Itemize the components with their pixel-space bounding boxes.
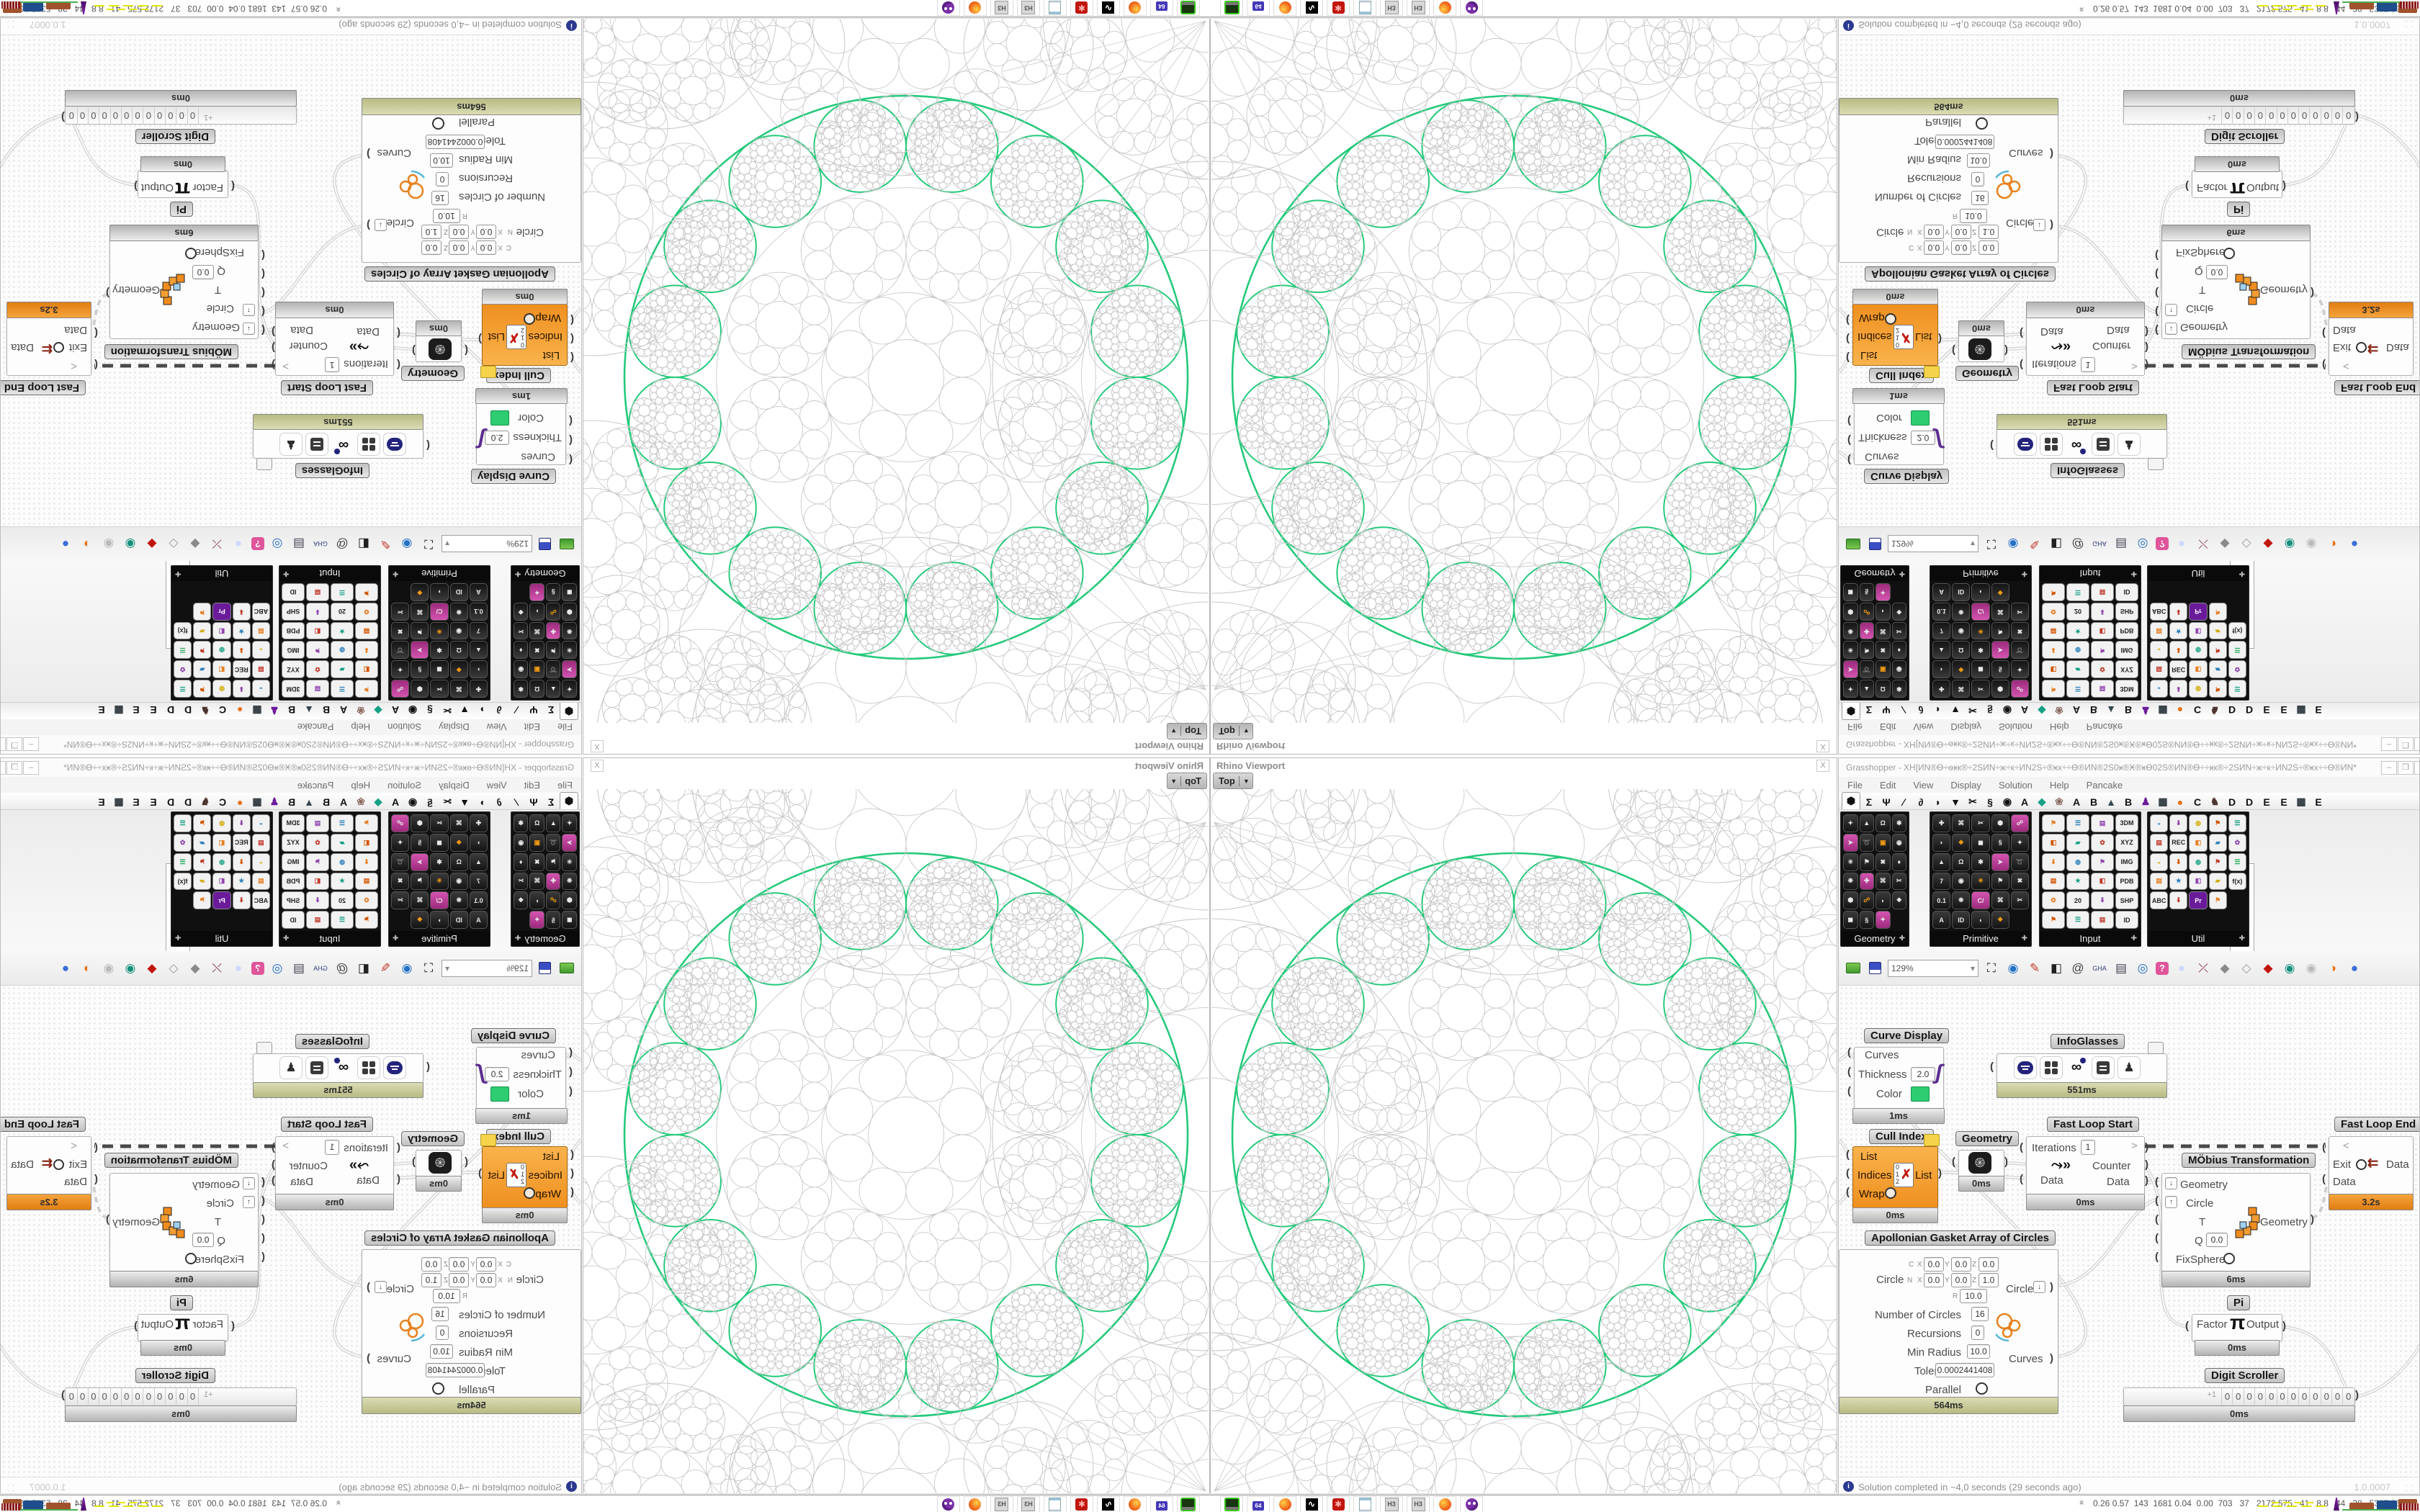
component-icon[interactable]: ⬢: [1843, 603, 1858, 621]
component-icon[interactable]: ◍: [331, 642, 354, 660]
profiler-icon[interactable]: @: [2069, 536, 2087, 553]
component-tab-19[interactable]: ●: [2172, 703, 2189, 718]
input-hook[interactable]: (: [261, 249, 265, 261]
digit-cell[interactable]: 0: [77, 1387, 89, 1405]
component-icon[interactable]: ⬢: [411, 680, 429, 698]
component-tab-26[interactable]: ▦: [2293, 703, 2310, 718]
archive-button-icon[interactable]: [305, 433, 328, 456]
input-hook[interactable]: (: [2322, 1141, 2326, 1153]
component-icon[interactable]: ⬇: [233, 680, 251, 698]
output-hook[interactable]: ): [272, 359, 275, 371]
component-icon[interactable]: IMG: [282, 642, 305, 660]
component-tab-20[interactable]: C: [2189, 794, 2206, 809]
component-icon[interactable]: C/: [430, 891, 448, 909]
component-icon[interactable]: ◗: [470, 834, 488, 852]
component-icon[interactable]: ⌘: [530, 873, 545, 891]
input-hook[interactable]: (: [2020, 327, 2023, 339]
component-icon[interactable]: ⬇: [233, 603, 251, 621]
component-icon[interactable]: ▲: [1932, 642, 1950, 660]
component-icon[interactable]: ▲: [470, 853, 488, 871]
component-icon[interactable]: ⬢: [563, 891, 578, 909]
component-icon[interactable]: ✳: [563, 642, 578, 660]
component-icon[interactable]: Pr: [2189, 603, 2207, 621]
sketch-pen-icon[interactable]: ✎: [2026, 536, 2043, 553]
output-hook[interactable]: ): [2050, 1281, 2053, 1293]
input-hook[interactable]: (: [1846, 351, 1850, 364]
menu-item-help[interactable]: Help: [2050, 721, 2069, 732]
expand-icon[interactable]: ✚: [283, 570, 289, 577]
component-tab-2[interactable]: Ψ: [525, 703, 542, 718]
cz-value[interactable]: 0.0: [1978, 1257, 1999, 1272]
digit-cell[interactable]: 0: [2244, 107, 2255, 125]
component-tab-12[interactable]: ❀: [352, 703, 369, 718]
component-icon[interactable]: ✂: [430, 814, 448, 832]
component-icon[interactable]: ⬇: [306, 891, 329, 909]
input-hook[interactable]: (: [569, 434, 573, 446]
firefox-icon[interactable]: [1124, 1496, 1147, 1512]
component-tab-21[interactable]: ♞: [197, 703, 214, 718]
output-hook[interactable]: ): [106, 1213, 109, 1225]
r-value[interactable]: 10.0: [433, 1289, 460, 1303]
component-tab-17[interactable]: ♟: [266, 703, 283, 718]
input-hook[interactable]: (: [465, 344, 468, 356]
digit-cells[interactable]: 000000000000: [2221, 1387, 2354, 1405]
digit-cell[interactable]: 0: [165, 1387, 176, 1405]
component-plate-apollonian[interactable]: Apollonian Gasket Array of Circles: [364, 1230, 555, 1246]
component-icon[interactable]: ⚑: [193, 680, 211, 698]
apollonian-gasket-canvas[interactable]: [583, 789, 1209, 1494]
component-icon[interactable]: ▤: [2091, 583, 2114, 601]
component-tab-3[interactable]: ∕: [508, 703, 525, 718]
input-hook[interactable]: (: [2155, 249, 2159, 261]
firefox-icon[interactable]: [1273, 0, 1296, 16]
palette-group-label[interactable]: Util✚: [2148, 931, 2249, 946]
preview-eye-icon[interactable]: ◉: [2004, 536, 2022, 553]
digit-cell[interactable]: 0: [2298, 107, 2310, 125]
component-icon[interactable]: ✿: [2091, 834, 2114, 852]
component-icon[interactable]: §: [1991, 834, 2009, 852]
component-icon[interactable]: 20: [2066, 603, 2089, 621]
exit-toggle[interactable]: [2356, 342, 2367, 353]
input-hook[interactable]: (: [2020, 359, 2023, 371]
color-swatch[interactable]: [490, 410, 509, 426]
component-tab-26[interactable]: ▦: [2293, 794, 2310, 809]
component-plate-pi[interactable]: Pi: [2227, 202, 2250, 217]
speech-bubble-icon[interactable]: [2148, 458, 2164, 470]
component-plate-fast-loop-start[interactable]: Fast Loop Start: [281, 1117, 373, 1132]
component-icon[interactable]: ◍: [212, 642, 230, 660]
component-icon[interactable]: ◧: [212, 834, 230, 852]
menu-item-view[interactable]: View: [487, 721, 507, 732]
component-tab-27[interactable]: E: [2310, 794, 2327, 809]
output-hook[interactable]: ): [134, 180, 138, 192]
component-icon[interactable]: ▲: [1860, 814, 1875, 832]
digit-cell[interactable]: 0: [187, 107, 199, 125]
tolerance-value[interactable]: 0.0002441408: [1935, 135, 1994, 149]
component-plate-mobius[interactable]: MÖbius Transformation: [2182, 344, 2316, 359]
input-hook[interactable]: (: [1952, 344, 1955, 356]
input-hook[interactable]: (: [569, 1066, 573, 1078]
wire-display-icon[interactable]: ⤫: [2195, 536, 2212, 553]
component-icon[interactable]: ⬢: [1991, 680, 2009, 698]
component-tab-16[interactable]: B: [283, 703, 300, 718]
output-hook[interactable]: ): [2145, 1174, 2148, 1187]
pin-green-icon[interactable]: ◉: [122, 960, 139, 977]
menu-item-edit[interactable]: Edit: [1880, 780, 1896, 791]
output-hook[interactable]: ): [2050, 148, 2053, 160]
digit-cell[interactable]: 0: [2331, 1387, 2343, 1405]
component-icon[interactable]: ➤: [563, 834, 578, 852]
component-icon[interactable]: 7: [470, 622, 488, 640]
r-value[interactable]: 10.0: [1960, 209, 1987, 223]
component-icon[interactable]: Pr: [2189, 891, 2207, 909]
expand-icon[interactable]: ✚: [393, 570, 398, 577]
ny-value[interactable]: 0.0: [1951, 1273, 1971, 1287]
component-tab-24[interactable]: E: [2258, 794, 2275, 809]
nx-value[interactable]: 0.0: [476, 225, 496, 239]
component-icon[interactable]: ◉: [514, 834, 529, 852]
component-icon[interactable]: ▣: [1875, 660, 1891, 678]
handbrake-icon[interactable]: H3: [1017, 0, 1040, 16]
component-icon[interactable]: ❖: [1892, 891, 1907, 909]
output-hook[interactable]: ): [367, 1352, 370, 1364]
component-icon[interactable]: ✳: [1971, 873, 1989, 891]
grasshopper-titlebar[interactable]: Grasshopper - XH[ИN®Ѳ÷ѳӿк®÷2SИN÷ж÷к÷ИN2S…: [1839, 735, 2419, 754]
component-icon[interactable]: ◼: [1971, 834, 1989, 852]
input-hook[interactable]: (: [2155, 1176, 2159, 1188]
input-hook[interactable]: (: [94, 1173, 98, 1185]
component-plate-infoglasses[interactable]: InfoGlasses: [2051, 463, 2125, 478]
monkey-purple-icon[interactable]: [937, 0, 960, 16]
component-plate-mobius[interactable]: MÖbius Transformation: [104, 1153, 238, 1168]
component-icon[interactable]: ❖: [514, 891, 529, 909]
component-icon[interactable]: PDB: [282, 873, 305, 891]
component-tab-13[interactable]: A: [335, 794, 352, 809]
grasshopper-canvas[interactable]: Curve Display ( ( ( Curves Thickness 2.0…: [1, 986, 581, 1477]
component-icon[interactable]: ▲: [1860, 680, 1875, 698]
component-icon[interactable]: ▲: [546, 814, 561, 832]
puzzle-button-icon[interactable]: ♟: [2117, 1056, 2141, 1079]
hint-bulb-icon[interactable]: ●: [2173, 536, 2190, 553]
component-tab-10[interactable]: A: [387, 703, 404, 718]
component-icon[interactable]: ▲: [470, 642, 488, 660]
obscure-box-icon[interactable]: ?: [251, 538, 264, 551]
output-hook[interactable]: ): [2004, 1156, 2008, 1168]
component-icon[interactable]: ♦: [514, 642, 529, 660]
component-icon[interactable]: ✦: [563, 814, 578, 832]
component-icon[interactable]: ◧: [355, 660, 378, 678]
save-floppy-icon[interactable]: [1866, 960, 1883, 977]
component-icon[interactable]: ID: [2115, 583, 2138, 601]
component-icon[interactable]: f(x): [174, 873, 192, 891]
grasshopper-titlebar[interactable]: Grasshopper - XH[ИN®Ѳ÷ѳӿк®÷2SИN÷ж÷к÷ИN2S…: [1839, 758, 2419, 777]
component-icon[interactable]: ▲: [1932, 853, 1950, 871]
component-icon[interactable]: ◒: [252, 680, 270, 698]
input-hook[interactable]: (: [2322, 359, 2326, 371]
input-hook[interactable]: (: [2020, 1141, 2023, 1153]
grid-button-icon[interactable]: [357, 433, 380, 456]
color-swatch[interactable]: [490, 1086, 509, 1102]
component-icon[interactable]: ★: [2169, 622, 2187, 640]
ball-blue-icon[interactable]: ●: [57, 960, 74, 977]
iterations-value[interactable]: 1: [325, 1140, 339, 1155]
component-icon[interactable]: ☰: [331, 680, 354, 698]
digit-cell[interactable]: 0: [2287, 107, 2299, 125]
component-icon[interactable]: ✱: [1971, 853, 1989, 871]
component-tab-1[interactable]: Σ: [542, 703, 560, 718]
component-icon[interactable]: §: [546, 583, 561, 601]
component-icon[interactable]: ❖: [411, 911, 429, 929]
digit-cell[interactable]: 0: [99, 107, 111, 125]
component-tab-5[interactable]: ◗: [473, 794, 490, 809]
component-tab-14[interactable]: B: [318, 703, 335, 718]
input-hook[interactable]: (: [1847, 434, 1851, 446]
notepad-icon[interactable]: [1044, 0, 1067, 16]
recursions-value[interactable]: 0: [436, 172, 449, 186]
cy-value[interactable]: 0.0: [1951, 240, 1971, 255]
component-icon[interactable]: ◉: [514, 660, 529, 678]
gem-gray-icon[interactable]: ◆: [187, 536, 204, 553]
gem-red-icon[interactable]: ◆: [2259, 536, 2277, 553]
component-icon[interactable]: Ω: [1875, 814, 1891, 832]
wrap-toggle[interactable]: [1885, 313, 1896, 325]
component-icon[interactable]: ➤: [1843, 834, 1858, 852]
cx-value[interactable]: 0.0: [476, 240, 496, 255]
component-icon[interactable]: ⬇: [2169, 680, 2187, 698]
component-icon[interactable]: ⌘: [1875, 873, 1891, 891]
color-swatch[interactable]: [1911, 1086, 1930, 1102]
component-icon[interactable]: ◼: [1843, 583, 1858, 601]
component-tab-18[interactable]: ▦: [248, 703, 266, 718]
menu-item-solution[interactable]: Solution: [1999, 780, 2033, 791]
component-tab-24[interactable]: E: [145, 794, 162, 809]
component-icon[interactable]: Ω: [530, 680, 545, 698]
input-hook[interactable]: (: [94, 1141, 98, 1153]
component-icon[interactable]: Ω: [450, 642, 468, 660]
digit-cell[interactable]: 0: [133, 1387, 144, 1405]
component-icon[interactable]: ▣: [1875, 834, 1891, 852]
input-hook[interactable]: (: [261, 1251, 265, 1263]
save-floppy-icon[interactable]: [537, 536, 554, 553]
wire-display-icon[interactable]: ⤫: [208, 960, 225, 977]
q-value[interactable]: 0.0: [2206, 265, 2228, 279]
component-tab-6[interactable]: ▼: [456, 703, 473, 718]
component-tab-8[interactable]: §: [421, 794, 439, 809]
expand-icon[interactable]: ✚: [2131, 935, 2137, 942]
glasses-lock-icon[interactable]: ∞: [333, 434, 354, 456]
mesh-preview-icon[interactable]: ◧: [355, 536, 372, 553]
component-icon[interactable]: ☰: [174, 642, 192, 660]
output-hook[interactable]: ): [134, 1320, 138, 1332]
mesh-preview-icon[interactable]: ◧: [2048, 536, 2065, 553]
zoom-extents-icon[interactable]: ⛶: [420, 536, 437, 553]
hint-bulb-icon[interactable]: ●: [230, 536, 247, 553]
wire-apollonian.Circles-mobius.Circle[interactable]: [260, 1199, 366, 1286]
component-icon[interactable]: ⬇: [233, 891, 251, 909]
firefox-icon[interactable]: [964, 0, 987, 16]
pin-white-icon[interactable]: ◉: [100, 536, 117, 553]
nx-value[interactable]: 0.0: [1924, 1273, 1944, 1287]
component-plate-apollonian[interactable]: Apollonian Gasket Array of Circles: [364, 266, 555, 282]
component-icon[interactable]: ⬢: [1843, 891, 1858, 909]
gha-loader-icon[interactable]: GHA: [312, 536, 329, 553]
input-hook[interactable]: (: [570, 1148, 574, 1161]
component-icon[interactable]: ⬇: [355, 642, 378, 660]
input-hook[interactable]: (: [570, 1167, 574, 1179]
glasses-lock-icon[interactable]: ∞: [2066, 1056, 2087, 1078]
digit-cell[interactable]: 0: [2221, 1387, 2233, 1405]
component-tab-4[interactable]: ∂: [1912, 703, 1930, 718]
component-icon[interactable]: C/: [1971, 891, 1989, 909]
component-icon[interactable]: ✱: [1971, 642, 1989, 660]
component-icon[interactable]: IMG: [2115, 642, 2138, 660]
component-icon[interactable]: ✿: [306, 834, 329, 852]
component-tab-20[interactable]: C: [214, 703, 231, 718]
component-tab-2[interactable]: Ψ: [525, 794, 542, 809]
component-tab-15[interactable]: ▲: [300, 703, 318, 718]
component-tab-27[interactable]: E: [2310, 703, 2327, 718]
parallel-toggle[interactable]: [432, 1382, 444, 1395]
component-tab-13[interactable]: A: [2068, 794, 2085, 809]
component-plate-fast-loop-start[interactable]: Fast Loop Start: [281, 380, 373, 395]
iterations-value[interactable]: 1: [2081, 357, 2095, 372]
resize-grip-icon[interactable]: ⸬: [2406, 1482, 2414, 1494]
menu-item-view[interactable]: View: [487, 780, 507, 791]
grasshopper-canvas[interactable]: Curve Display ( ( ( Curves Thickness 2.0…: [1, 35, 581, 526]
digit-cells[interactable]: 000000000000: [2221, 107, 2354, 125]
palette-group-label[interactable]: Input✚: [2040, 931, 2141, 946]
wire-display-icon[interactable]: ⤫: [208, 536, 225, 553]
component-tab-26[interactable]: ▦: [110, 703, 127, 718]
component-tab-3[interactable]: ∕: [1895, 703, 1912, 718]
component-icon[interactable]: ✖: [2011, 873, 2029, 891]
digit-cell[interactable]: 0: [2254, 1387, 2266, 1405]
component-icon[interactable]: ✚: [546, 622, 561, 640]
component-icon[interactable]: ◗: [1971, 911, 1989, 929]
handbrake-icon[interactable]: H3: [1017, 1496, 1040, 1512]
cx-value[interactable]: 0.0: [1924, 1257, 1944, 1272]
component-icon[interactable]: Pr: [212, 603, 230, 621]
expression-down-icon[interactable]: ↓: [375, 1281, 387, 1293]
component-icon[interactable]: ◧: [2189, 834, 2207, 852]
grasshopper-titlebar[interactable]: Grasshopper - XH[ИN®Ѳ÷ѳӿк®÷2SИN÷ж÷к÷ИN2S…: [1, 758, 581, 777]
viewport-close-button[interactable]: X: [591, 740, 604, 752]
q-value[interactable]: 0.0: [192, 265, 214, 279]
output-hook[interactable]: ): [2145, 341, 2148, 354]
component-plate-geometry[interactable]: Geometry: [401, 1131, 465, 1146]
zoom-select[interactable]: 129%▾: [442, 536, 532, 553]
profiler-icon[interactable]: @: [333, 536, 351, 553]
component-tab-13[interactable]: A: [2068, 703, 2085, 718]
handbrake-icon[interactable]: H3: [1380, 0, 1403, 16]
component-icon[interactable]: ✖: [1875, 642, 1891, 660]
digit-cell[interactable]: 0: [110, 1387, 122, 1405]
input-hook[interactable]: (: [2155, 1232, 2159, 1244]
component-icon[interactable]: ➰: [546, 834, 561, 852]
wrap-toggle[interactable]: [524, 1187, 535, 1199]
component-plate-fast-loop-start[interactable]: Fast Loop Start: [2047, 1117, 2139, 1132]
component-icon[interactable]: ➤: [411, 853, 429, 871]
component-icon[interactable]: ◧: [2042, 834, 2065, 852]
input-hook[interactable]: (: [261, 1194, 265, 1207]
input-hook[interactable]: (: [570, 351, 574, 364]
open-folder-icon[interactable]: [1845, 536, 1862, 553]
component-icon[interactable]: Ω: [1952, 853, 1970, 871]
component-icon[interactable]: ▰: [2209, 834, 2227, 852]
component-icon[interactable]: ✦: [563, 680, 578, 698]
maximize-button[interactable]: ❐: [6, 761, 22, 775]
menu-item-pancake[interactable]: Pancake: [2087, 780, 2123, 791]
component-plate-pi[interactable]: Pi: [170, 202, 193, 217]
component-tab-27[interactable]: E: [93, 794, 110, 809]
component-tab-7[interactable]: ✂: [1964, 794, 1981, 809]
input-hook[interactable]: (: [569, 454, 573, 466]
component-icon[interactable]: ◉: [1892, 834, 1907, 852]
input-hook[interactable]: (: [569, 1046, 573, 1058]
component-icon[interactable]: ABC: [252, 603, 270, 621]
component-tab-13[interactable]: A: [335, 703, 352, 718]
component-icon[interactable]: ▣: [530, 660, 545, 678]
component-icon[interactable]: ◍: [212, 680, 230, 698]
output-hook[interactable]: ): [412, 344, 416, 356]
component-tab-3[interactable]: ∕: [508, 794, 525, 809]
notepad-icon[interactable]: [1353, 0, 1376, 16]
input-hook[interactable]: (: [2155, 324, 2159, 336]
output-hook[interactable]: ): [2355, 1389, 2359, 1401]
component-icon[interactable]: ★: [331, 622, 354, 640]
digit-cell[interactable]: 0: [2265, 1387, 2277, 1405]
component-icon[interactable]: ⚑: [2042, 814, 2065, 832]
component-tab-18[interactable]: ▦: [2154, 703, 2172, 718]
gem-wire-icon[interactable]: ◇: [2238, 960, 2255, 977]
component-icon[interactable]: ⚑: [2209, 814, 2227, 832]
digit-cell[interactable]: 0: [143, 107, 155, 125]
component-tab-27[interactable]: E: [93, 703, 110, 718]
component-plate-curve-display[interactable]: Curve Display: [471, 469, 556, 484]
component-icon[interactable]: ▤: [2150, 834, 2168, 852]
component-icon[interactable]: ☰: [331, 911, 354, 929]
input-hook[interactable]: (: [1990, 1061, 1994, 1073]
component-icon[interactable]: ✂: [2011, 603, 2029, 621]
gha-loader-icon[interactable]: GHA: [312, 960, 329, 977]
component-tab-23[interactable]: D: [162, 703, 179, 718]
component-icon[interactable]: ☰: [331, 583, 354, 601]
component-plate-geometry[interactable]: Geometry: [1955, 366, 2019, 381]
component-icon[interactable]: ➤: [1991, 642, 2009, 660]
floppy-64-icon[interactable]: 64: [1150, 1496, 1173, 1512]
grid-button-icon[interactable]: [2040, 1056, 2063, 1079]
number-of-circles-value[interactable]: 16: [1971, 191, 1989, 205]
input-hook[interactable]: (: [261, 1176, 265, 1188]
component-icon[interactable]: 0.1: [470, 603, 488, 621]
component-icon[interactable]: ✱: [514, 814, 529, 832]
firefox-icon[interactable]: [964, 1496, 987, 1512]
digit-cell[interactable]: 0: [143, 1387, 155, 1405]
list-button-icon[interactable]: [2014, 1056, 2037, 1079]
component-icon[interactable]: 0.1: [1932, 891, 1950, 909]
component-icon[interactable]: ✦: [1875, 583, 1891, 601]
notepad-icon[interactable]: [1044, 1496, 1067, 1512]
component-icon[interactable]: ☰: [2066, 911, 2089, 929]
component-icon[interactable]: ➰: [2011, 853, 2029, 871]
component-icon[interactable]: ◍: [212, 814, 230, 832]
digit-cell[interactable]: 0: [77, 107, 89, 125]
component-icon[interactable]: ⚑: [193, 603, 211, 621]
component-icon[interactable]: ✂: [1892, 622, 1907, 640]
wire-digit-scroller-offscreen-right[interactable]: [1, 115, 63, 168]
component-tab-2[interactable]: Ψ: [1878, 794, 1895, 809]
component-icon[interactable]: ⚑: [2209, 680, 2227, 698]
